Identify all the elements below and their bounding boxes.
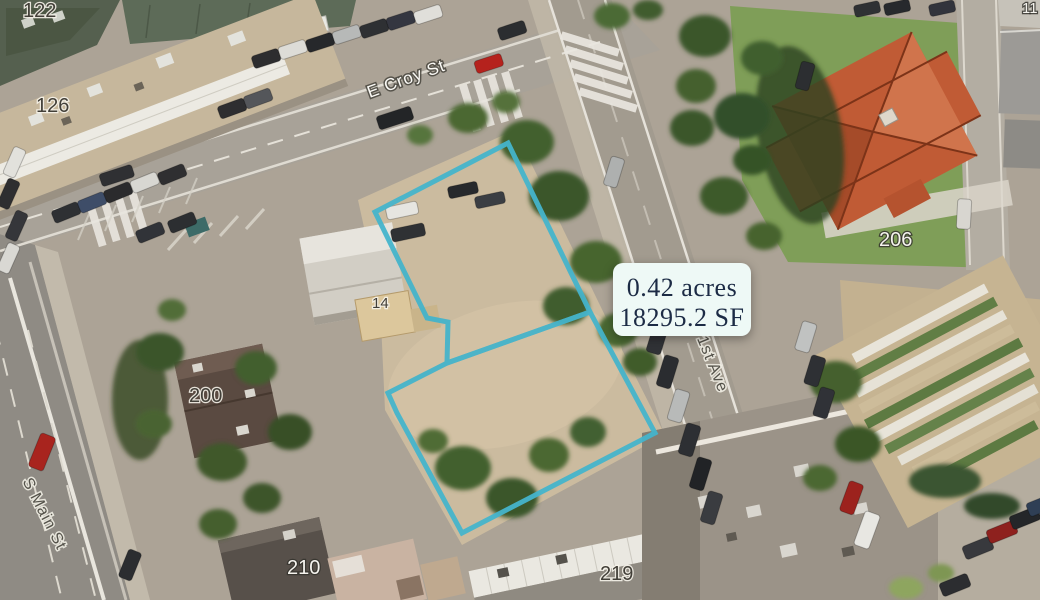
address-label-210: 210 (287, 557, 320, 579)
tree (235, 351, 277, 385)
tree (199, 509, 237, 539)
tree (407, 125, 433, 145)
tree (733, 145, 771, 175)
area-label-acres: 0.42 acres (627, 273, 737, 302)
tree (714, 93, 770, 139)
building-east-gray-roof (999, 29, 1040, 114)
tree (418, 429, 448, 453)
tree (679, 15, 731, 57)
hedge (964, 493, 1020, 519)
tree (529, 171, 589, 221)
tree (158, 299, 186, 321)
address-label-126: 126 (36, 95, 69, 117)
tree (746, 222, 782, 250)
address-label-206: 206 (879, 229, 912, 251)
tree (136, 410, 172, 438)
address-label-200: 200 (189, 385, 222, 407)
tree (448, 103, 488, 133)
tree (529, 438, 569, 472)
tree (570, 417, 606, 447)
map-scene: E Croy St S Main St 1st Ave 122 126 14 2… (0, 0, 1040, 600)
tree (492, 91, 520, 113)
address-label-14: 14 (372, 295, 389, 312)
tree (594, 3, 630, 29)
address-label-122: 122 (23, 0, 56, 22)
area-label-box[interactable]: 0.42 acres 18295.2 SF (613, 263, 751, 336)
tree (268, 414, 312, 450)
tree (670, 110, 714, 146)
tree (803, 465, 837, 491)
address-label-11: 11 (1022, 0, 1038, 17)
tree (633, 0, 663, 20)
tree (835, 426, 881, 462)
satellite-map-canvas[interactable]: E Croy St S Main St 1st Ave 122 126 14 2… (0, 0, 1040, 600)
hedge (909, 464, 981, 498)
tree (676, 69, 716, 103)
car (956, 199, 972, 230)
tree (741, 41, 783, 75)
tree (136, 333, 184, 371)
building-east-gray-roof-2 (1003, 119, 1040, 168)
tree (889, 577, 923, 599)
area-label-sqft: 18295.2 SF (620, 303, 745, 332)
address-label-219: 219 (600, 563, 633, 585)
tree (435, 446, 491, 490)
tree (700, 177, 748, 215)
tree (197, 443, 247, 481)
tree (243, 483, 281, 513)
